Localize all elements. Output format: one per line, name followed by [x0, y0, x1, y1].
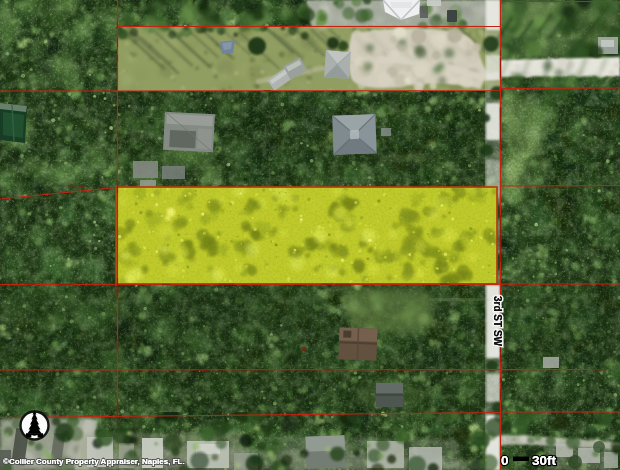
- svg-text:30ft: 30ft: [532, 453, 557, 468]
- svg-text:©Collier County Property Appra: ©Collier County Property Appraiser, Napl…: [3, 457, 185, 466]
- svg-text:0: 0: [501, 453, 509, 468]
- svg-text:3rd ST SW: 3rd ST SW: [492, 296, 503, 347]
